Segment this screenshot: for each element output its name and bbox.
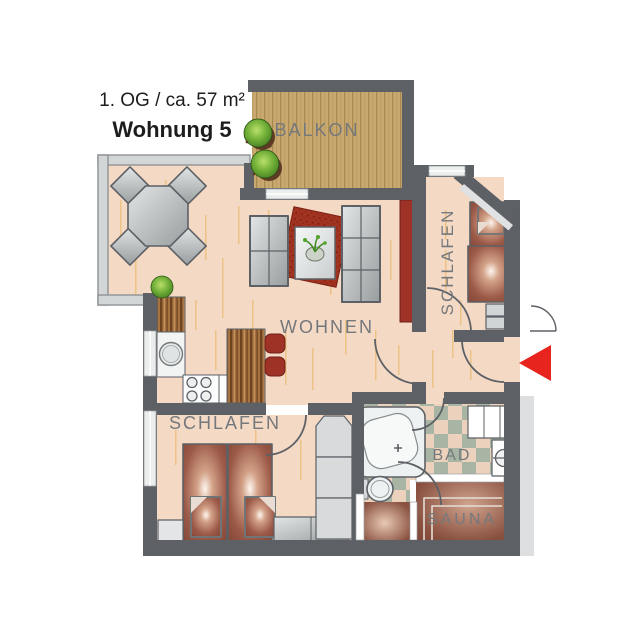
room-label-wohnen: WOHNEN: [267, 317, 387, 338]
shower-floor: [364, 502, 410, 540]
bathtub: [357, 407, 425, 477]
balcony-parapet: [248, 80, 414, 92]
plant-icon: [151, 276, 173, 298]
wardrobe: [316, 416, 352, 539]
dining-table: [128, 186, 188, 246]
entrance-opening: [504, 337, 520, 382]
bar-stool: [265, 357, 285, 376]
toilet: [362, 477, 393, 502]
kitchen-counter: [157, 297, 185, 332]
coffee-table: [295, 227, 335, 279]
sofa-left: [250, 216, 288, 286]
room-label-schlafen-bottom: SCHLAFEN: [165, 413, 285, 434]
exterior-ledge: [520, 396, 534, 556]
room-label-balkon: BALKON: [257, 120, 377, 141]
kitchen-island: [227, 329, 265, 403]
plan-title-line2: Wohnung 5: [94, 117, 250, 143]
floor-plan: 1. OG / ca. 57 m² Wohnung 5 BALKON SCHLA…: [0, 0, 640, 640]
door-leaf: [356, 494, 364, 540]
room-label-bad: BAD: [412, 447, 492, 465]
exterior-landing: [530, 306, 556, 331]
double-bed: [183, 444, 275, 543]
room-label-sauna: SAUNA: [412, 511, 512, 529]
sofa-right: [342, 206, 380, 302]
entrance-arrow-icon: [519, 345, 551, 381]
nightstand: [158, 520, 183, 542]
plan-title-line1: 1. OG / ca. 57 m²: [94, 90, 250, 112]
room-label-schlafen-top: SCHLAFEN: [438, 197, 458, 327]
